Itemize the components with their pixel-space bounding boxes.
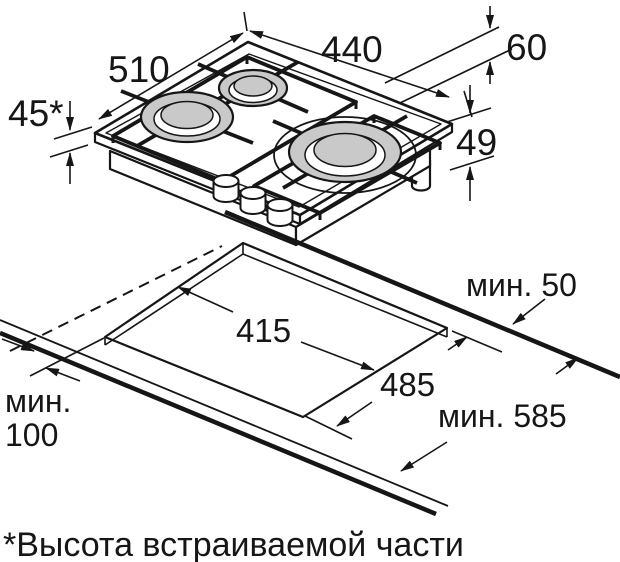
- dim-label-min-side-100: 100: [5, 417, 58, 453]
- footnote-builtin-height: *Высота встраиваемой части: [3, 526, 464, 562]
- knob-2-top: [241, 187, 266, 199]
- knob-3-top: [268, 199, 293, 211]
- burner-large: [289, 122, 401, 182]
- installation-diagram: 510 440 60 49 45* 415: [0, 0, 620, 562]
- dim-label-depth-510: 510: [108, 49, 170, 90]
- dim-label-width-440: 440: [321, 29, 383, 70]
- diagram-page: 510 440 60 49 45* 415: [0, 0, 620, 562]
- burner-back: [219, 70, 287, 106]
- dim-label-min-rear-50: мин. 50: [466, 267, 577, 303]
- dim-label-cutout-width-415: 415: [236, 312, 291, 349]
- dim-label-height-49: 49: [456, 122, 497, 163]
- knob-1-top: [214, 175, 239, 187]
- dim-label-min-depth-585: мин. 585: [438, 398, 567, 434]
- dim-label-offset-60: 60: [506, 27, 547, 68]
- burner-left: [141, 92, 233, 142]
- dim-label-cutout-depth-485: 485: [380, 366, 435, 403]
- dim-label-min-side-word: мин.: [5, 383, 71, 419]
- dim-label-builtin-45: 45*: [8, 93, 64, 134]
